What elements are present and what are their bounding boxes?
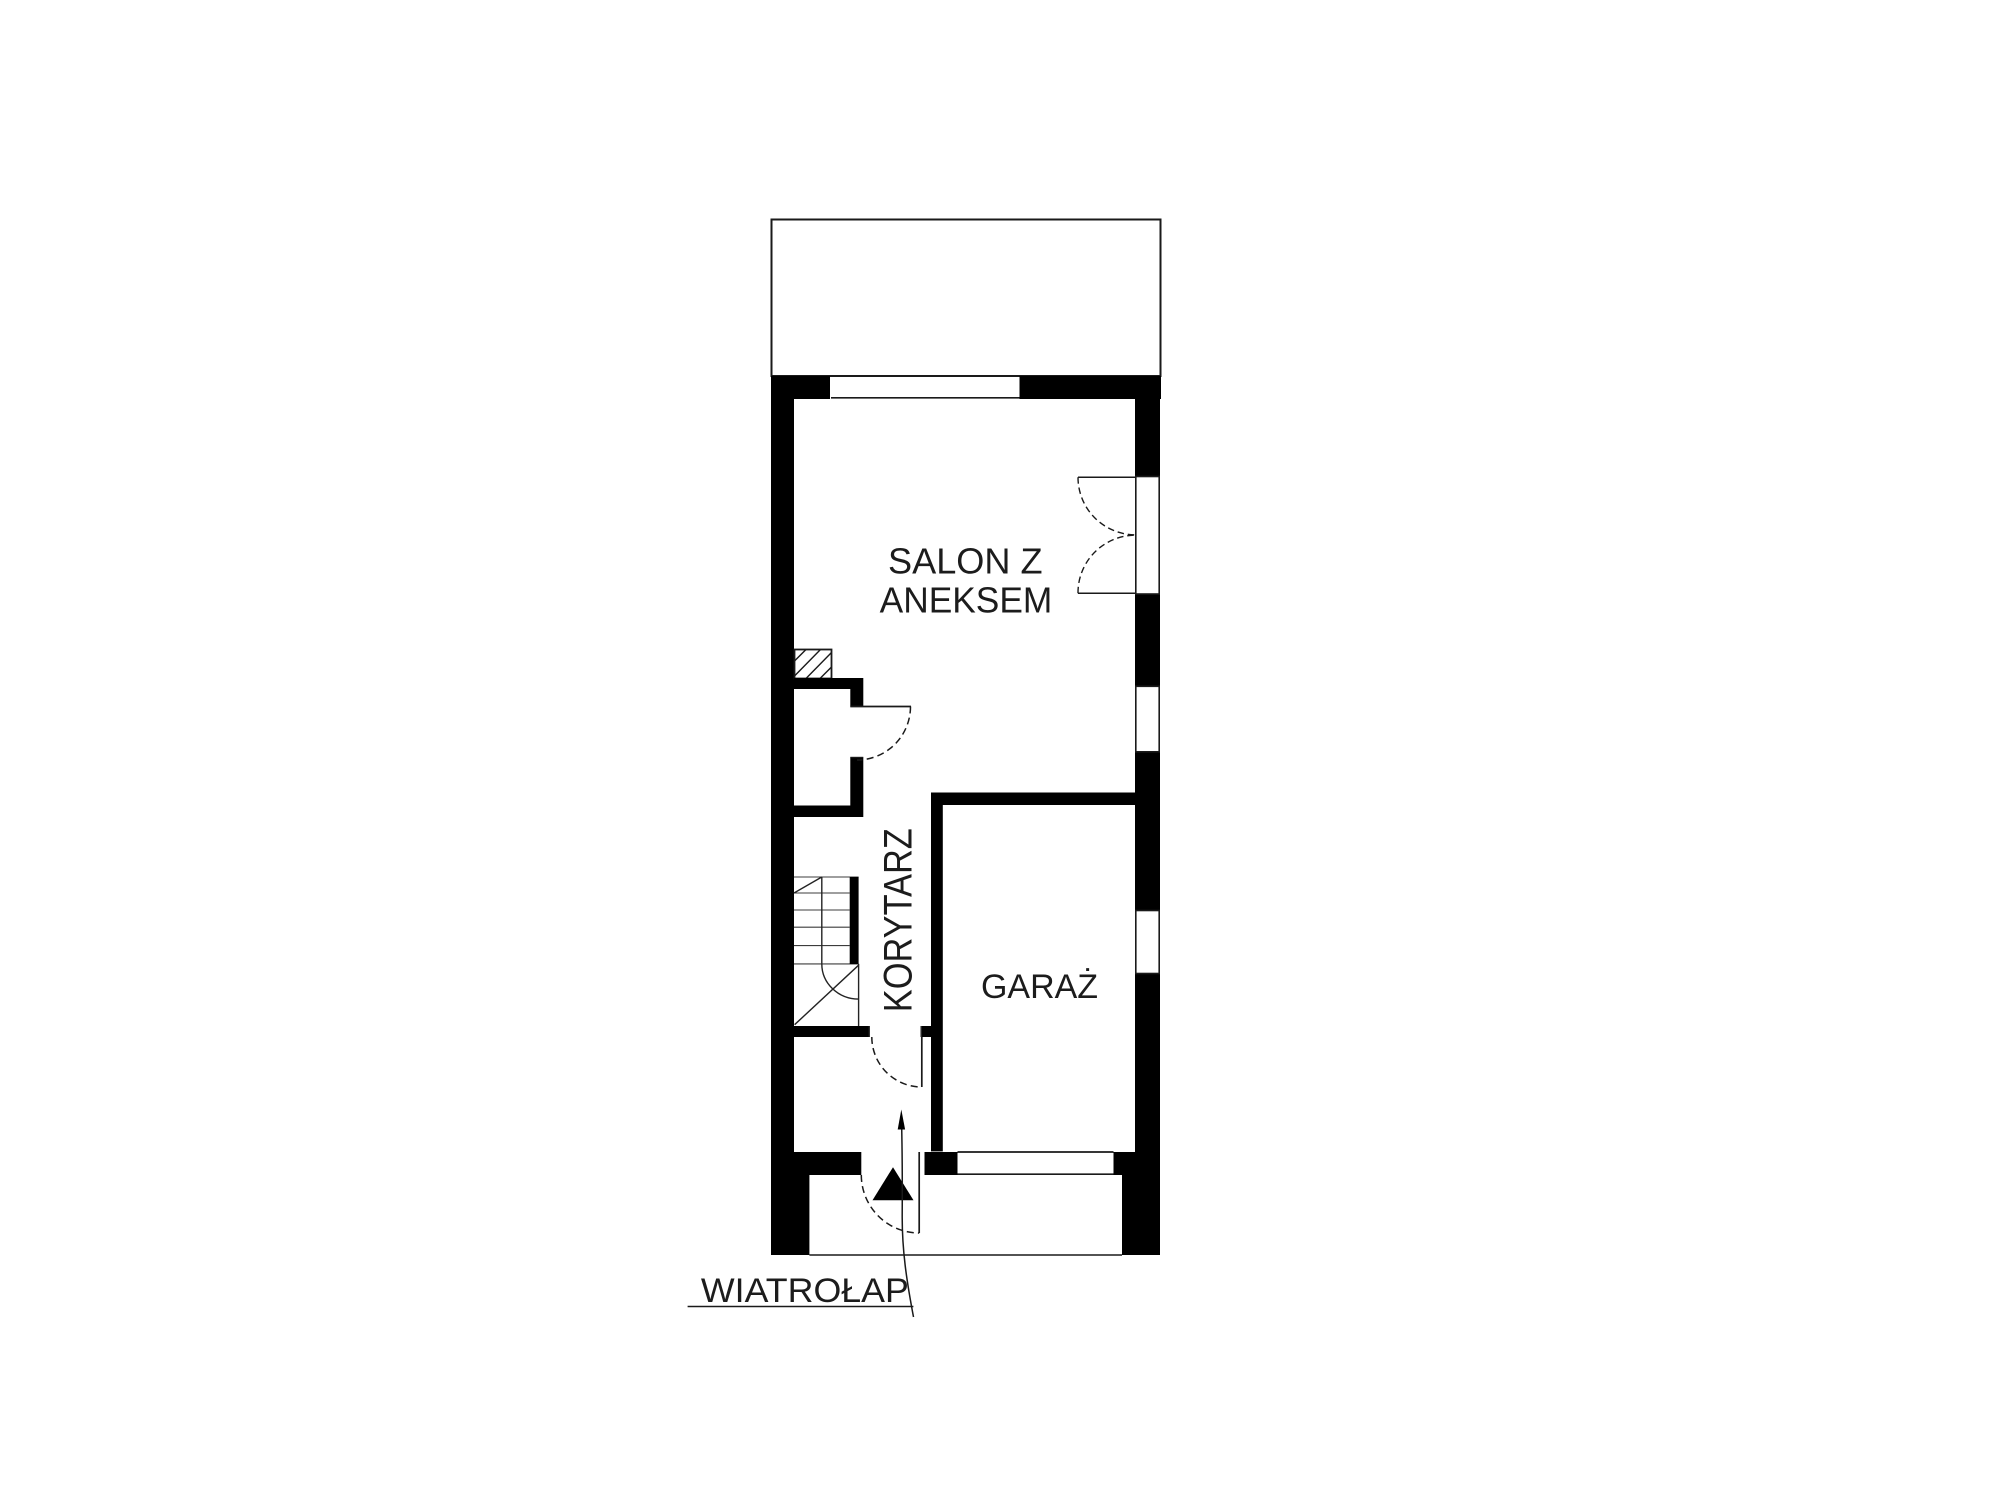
svg-text:SALON Z: SALON Z: [888, 541, 1043, 582]
svg-text:KORYTARZ: KORYTARZ: [877, 828, 921, 1012]
svg-text:ANEKSEM: ANEKSEM: [880, 580, 1053, 621]
svg-text:GARAŻ: GARAŻ: [981, 968, 1098, 1006]
svg-text:WIATROŁAP: WIATROŁAP: [701, 1272, 909, 1310]
